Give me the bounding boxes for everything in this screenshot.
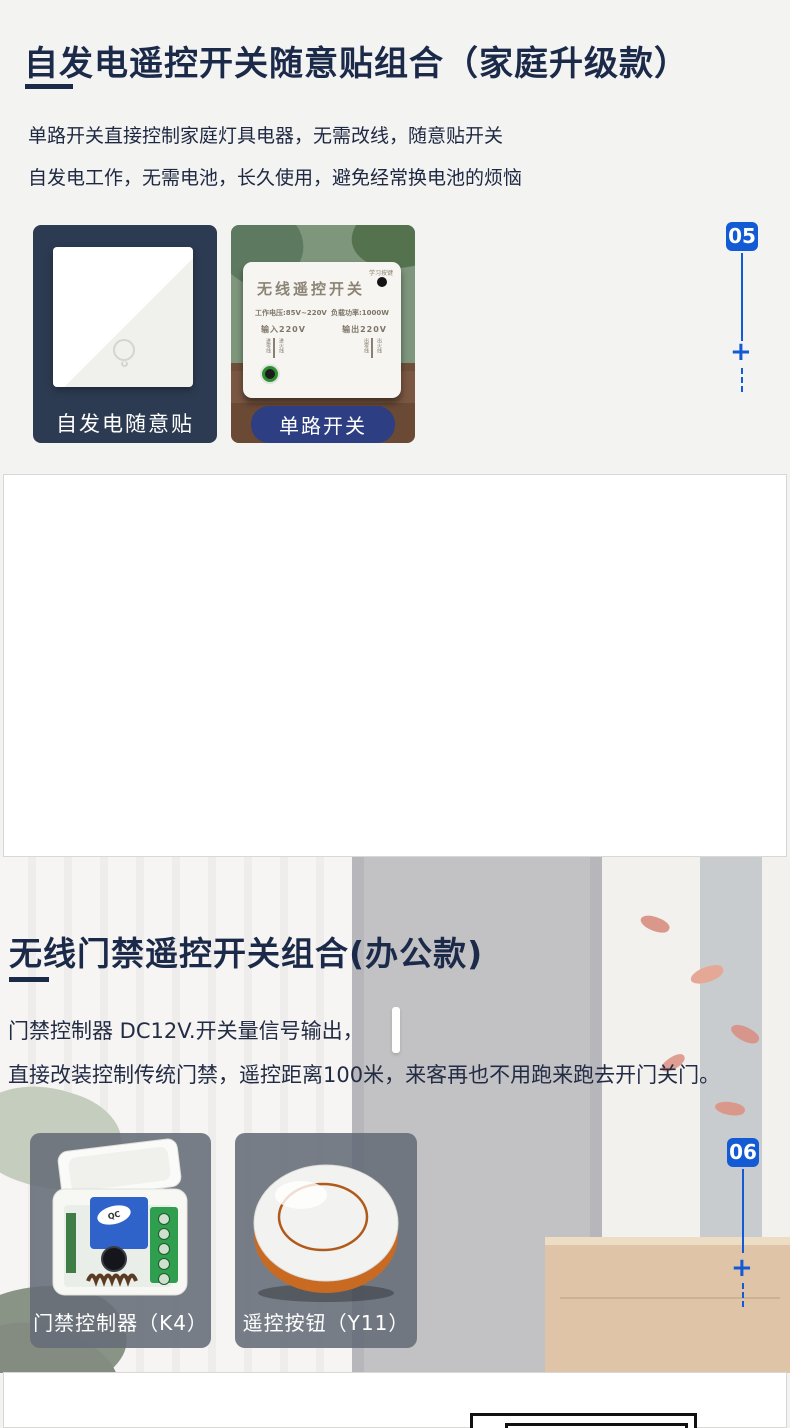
section3-title: 无线门禁遥控开关组合(办公款): [9, 927, 483, 975]
product-label-remote-button: 遥控按钮（Y11）: [235, 1307, 417, 1336]
step-number-badge: 06: [727, 1138, 759, 1167]
product-image-sticker-switch: 自发电随意贴: [33, 225, 217, 443]
product-label-sticker-switch: 自发电随意贴: [33, 408, 217, 438]
step-connector-dash: [742, 1283, 744, 1307]
pcb-edge: [66, 1213, 76, 1273]
step-connector-dash: [741, 368, 743, 392]
section3-description-line1: 门禁控制器 DC12V.开关量信号输出，: [8, 1015, 364, 1045]
section1-description-line2: 自发电工作，无需电池，长久使用，避免经常换电池的烦恼: [28, 163, 522, 190]
title-underline: [9, 977, 49, 982]
divider: [371, 338, 373, 358]
door-controller-illustration: QC: [30, 1133, 211, 1305]
device-output-text: 输出220V: [342, 324, 387, 335]
terminal-screw: [159, 1259, 170, 1270]
device-input-text: 输入220V: [261, 324, 306, 335]
terminal-label: 进零线: [265, 338, 270, 353]
output-terminal-labels: 出零线 出火线: [363, 338, 381, 358]
k4-diagram-inner-outline: [505, 1423, 688, 1428]
product-image-door-controller: QC 门禁控制器（K4）: [30, 1133, 211, 1348]
button-top-disc: [254, 1165, 398, 1281]
section3-description-line2: 直接改装控制传统门禁，遥控距离100米，来客再也不用跑来跑去开门关门。: [8, 1059, 720, 1089]
title-underline: [25, 84, 73, 89]
product-detail-page: 自发电遥控开关随意贴组合（家庭升级款） 单路开关直接控制家庭灯具电器，无需改线，…: [0, 0, 790, 1428]
screw-terminal-icon: [262, 366, 278, 382]
terminal-label: 出零线: [363, 338, 368, 353]
step-connector-line: [741, 253, 743, 341]
terminal-label: 进火线: [278, 338, 283, 353]
section-self-powered-combo: 自发电遥控开关随意贴组合（家庭升级款） 单路开关直接控制家庭灯具电器，无需改线，…: [0, 0, 790, 474]
learn-button-icon: [377, 277, 387, 287]
section-door-access-combo: 无线门禁遥控开关组合(办公款) 门禁控制器 DC12V.开关量信号输出， 直接改…: [0, 857, 790, 1373]
section1-description-line1: 单路开关直接控制家庭灯具电器，无需改线，随意贴开关: [28, 121, 503, 148]
product-image-single-switch: 无线遥控开关 学习按键 工作电压:85V~220V 负载功率:1000W 输入2…: [231, 225, 415, 443]
terminal-screw: [159, 1214, 170, 1225]
product-label-single-switch: 单路开关: [251, 406, 395, 443]
section-single-switch-wiring: 单路开关接线图 输入电压：AC 85-220V 50Hz 工作模式：点动、自锁、…: [3, 474, 787, 857]
terminal-screw: [159, 1229, 170, 1240]
divider: [273, 338, 275, 358]
wall-switch-panel: [53, 247, 193, 387]
plus-icon: +: [731, 1253, 753, 1283]
remote-switch-device: 无线遥控开关 学习按键 工作电压:85V~220V 负载功率:1000W 输入2…: [243, 262, 401, 398]
product-image-remote-button: 遥控按钮（Y11）: [235, 1133, 417, 1348]
product-label-door-controller: 门禁控制器（K4）: [30, 1307, 211, 1336]
step-connector-line: [742, 1169, 744, 1253]
plus-icon: +: [730, 337, 752, 367]
touch-circle-icon: [113, 339, 135, 361]
learn-button-label: 学习按键: [369, 268, 393, 277]
terminal-screw: [159, 1274, 170, 1285]
section1-title: 自发电遥控开关随意贴组合（家庭升级款）: [24, 36, 689, 85]
terminal-label: 出火线: [376, 338, 381, 353]
relay-block: [90, 1197, 148, 1249]
step-number-badge: 05: [726, 222, 758, 251]
remote-button-illustration: [235, 1133, 417, 1305]
touch-notch-icon: [121, 361, 128, 367]
device-voltage-text: 工作电压:85V~220V: [255, 308, 327, 318]
terminal-screw: [159, 1244, 170, 1255]
device-name-text: 无线遥控开关: [257, 278, 365, 299]
device-power-text: 负载功率:1000W: [331, 308, 389, 318]
input-terminal-labels: 进零线 进火线: [265, 338, 283, 358]
button-highlight: [275, 1181, 327, 1209]
